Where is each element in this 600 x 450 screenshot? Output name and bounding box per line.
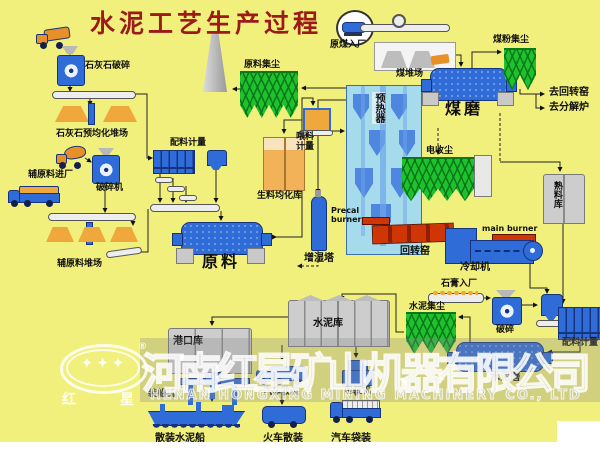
label-to-calciner: 去分解炉 bbox=[549, 102, 589, 113]
coal-yard-shed bbox=[374, 42, 456, 71]
label-truck-bulk: 汽车散装 bbox=[263, 388, 299, 398]
additive-bin bbox=[207, 150, 227, 166]
aux-delivery-truck bbox=[8, 186, 58, 208]
mill-feed-conveyor bbox=[150, 204, 220, 212]
label-raw-mill: 原料 bbox=[202, 253, 240, 271]
humidifier-tower bbox=[311, 196, 327, 251]
label-batching-left: 配料计量 bbox=[170, 139, 206, 149]
aux-crusher bbox=[92, 155, 120, 184]
label-cement-silo: 水泥库 bbox=[313, 318, 343, 329]
label-coal-mill: 煤磨 bbox=[445, 100, 483, 118]
label-ship-loader: 装船机 bbox=[148, 390, 175, 400]
packing-machine bbox=[340, 360, 374, 388]
bulk-cement-ship bbox=[148, 402, 243, 430]
limestone-dump-truck bbox=[36, 26, 68, 46]
label-to-rotary-kiln: 去回转窑 bbox=[549, 87, 589, 98]
limestone-crusher bbox=[57, 55, 85, 86]
label-homogenization: 生料均化库 bbox=[257, 192, 302, 202]
esp-outlet-box bbox=[474, 155, 492, 197]
label-raw-dust: 原料集尘 bbox=[244, 61, 280, 71]
humidifier-tower-neck bbox=[315, 190, 321, 197]
label-limestone-crushing: 石灰石破碎 bbox=[85, 62, 130, 72]
label-cooler: 冷却机 bbox=[460, 262, 490, 273]
weigh-feeder bbox=[155, 177, 173, 183]
port-silo bbox=[168, 328, 252, 374]
bottom-right-white-patch bbox=[557, 421, 600, 450]
label-rotary-kiln: 回转窑 bbox=[400, 246, 430, 257]
cement-process-diagram: 水泥工艺生产过程 bbox=[0, 0, 600, 450]
label-limestone-preblend-yard: 石灰石预均化堆场 bbox=[56, 130, 128, 140]
stacker-reclaimer bbox=[88, 103, 95, 125]
raw-mill-base bbox=[247, 248, 265, 264]
label-coal-dust: 煤粉集尘 bbox=[493, 36, 529, 46]
clinker-silo bbox=[543, 174, 585, 224]
label-gypsum-entry: 石膏入厂 bbox=[441, 280, 477, 290]
cement-mill bbox=[456, 342, 544, 372]
gypsum-crusher bbox=[492, 297, 522, 325]
label-cement-mill: 水泥磨 bbox=[490, 372, 520, 383]
train-bulk-car bbox=[262, 406, 304, 430]
coal-conveyor bbox=[360, 24, 450, 32]
label-precal-burner: Precal burner bbox=[331, 207, 371, 225]
label-packer: 包装机 bbox=[344, 387, 371, 397]
label-port-silo: 港口库 bbox=[173, 336, 203, 347]
bottom-white-strip bbox=[0, 442, 600, 450]
label-esp: 电收尘 bbox=[426, 147, 453, 157]
label-feed-metering: 喂料计量 bbox=[296, 133, 318, 153]
cooler-drive-wheel bbox=[523, 241, 543, 261]
coal-mill-base bbox=[497, 92, 514, 106]
label-coal-entry: 原煤入厂 bbox=[330, 41, 366, 51]
bag-truck bbox=[330, 398, 380, 428]
batching-feeders bbox=[153, 168, 195, 174]
weigh-feeder bbox=[179, 195, 197, 201]
limestone-conveyor bbox=[52, 91, 136, 99]
weigh-feeder bbox=[167, 186, 185, 192]
bulk-truck bbox=[256, 363, 308, 389]
label-batching-right: 配料计量 bbox=[562, 339, 598, 349]
batching-hoppers bbox=[153, 150, 195, 168]
label-gypsum-crusher: 破碎 bbox=[496, 326, 514, 336]
aux-mixer-truck bbox=[56, 146, 86, 166]
rotary-kiln bbox=[372, 223, 455, 245]
label-aux-entry: 辅原料进厂 bbox=[28, 171, 73, 181]
coal-mill-base bbox=[422, 92, 439, 106]
ship-loader bbox=[178, 372, 250, 406]
label-clinker-silo: 熟料库 bbox=[551, 181, 561, 208]
label-aux-crusher: 破碎机 bbox=[96, 184, 123, 194]
page-title: 水泥工艺生产过程 bbox=[90, 4, 322, 40]
label-coal-yard: 煤堆场 bbox=[396, 70, 423, 80]
label-preheater: 预热器 bbox=[372, 92, 385, 124]
raw-mill-base bbox=[176, 248, 194, 264]
coal-conveyor-pulley bbox=[392, 14, 406, 28]
label-humidifier: 增湿塔 bbox=[304, 253, 334, 264]
aux-conveyor bbox=[48, 213, 136, 221]
label-cement-dust: 水泥集尘 bbox=[409, 303, 445, 313]
cement-batching-hoppers bbox=[558, 307, 600, 333]
cement-dust-collector bbox=[406, 312, 456, 354]
label-main-burner: main burner bbox=[482, 225, 537, 234]
label-aux-yard: 辅原料堆场 bbox=[57, 260, 102, 270]
